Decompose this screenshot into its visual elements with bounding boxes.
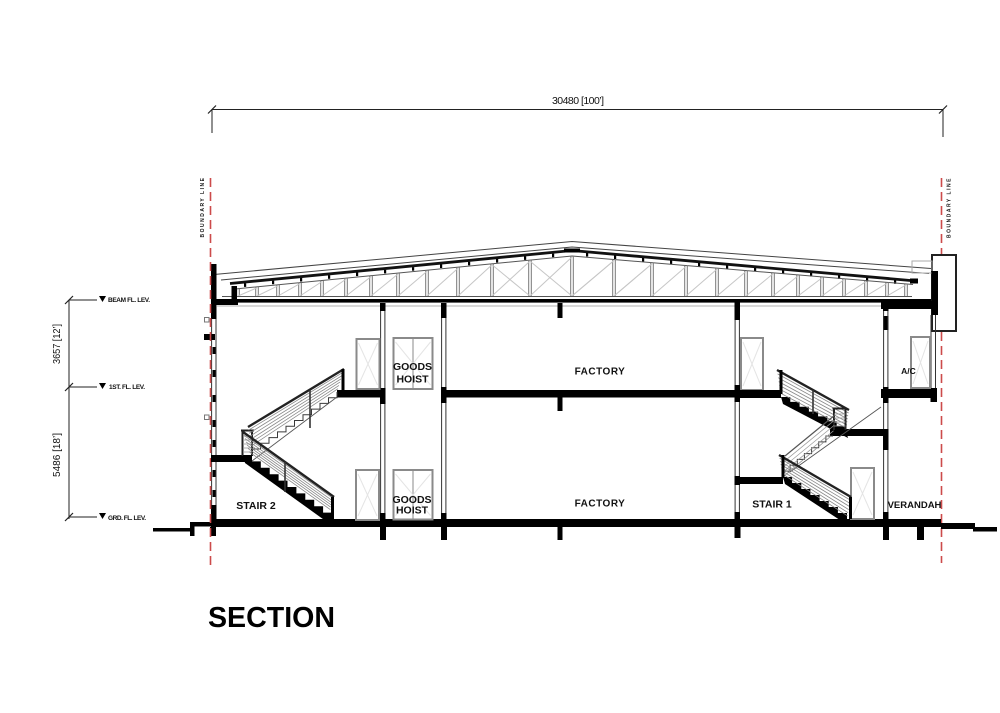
svg-text:1ST. FL. LEV.: 1ST. FL. LEV. — [109, 384, 145, 391]
svg-text:3657 [12’]: 3657 [12’] — [51, 324, 63, 364]
svg-text:HOIST: HOIST — [396, 374, 429, 386]
svg-text:STAIR 1: STAIR 1 — [752, 499, 792, 511]
svg-text:BEAM FL. LEV.: BEAM FL. LEV. — [108, 297, 150, 304]
svg-text:FACTORY: FACTORY — [575, 499, 626, 510]
svg-text:A/C: A/C — [901, 366, 916, 376]
svg-text:FACTORY: FACTORY — [575, 367, 626, 378]
svg-text:STAIR 2: STAIR 2 — [236, 500, 276, 512]
svg-text:BOUNDARY LINE: BOUNDARY LINE — [947, 177, 953, 238]
svg-text:SECTION: SECTION — [208, 602, 335, 634]
svg-text:BOUNDARY LINE: BOUNDARY LINE — [200, 177, 206, 238]
svg-text:GOODS: GOODS — [393, 361, 432, 373]
svg-text:VERANDAH: VERANDAH — [888, 500, 942, 511]
svg-text:30480 [100’]: 30480 [100’] — [552, 95, 604, 107]
svg-text:HOIST: HOIST — [396, 505, 429, 517]
svg-text:GRD. FL. LEV.: GRD. FL. LEV. — [108, 515, 146, 522]
svg-text:5486 [18’]: 5486 [18’] — [51, 433, 63, 477]
